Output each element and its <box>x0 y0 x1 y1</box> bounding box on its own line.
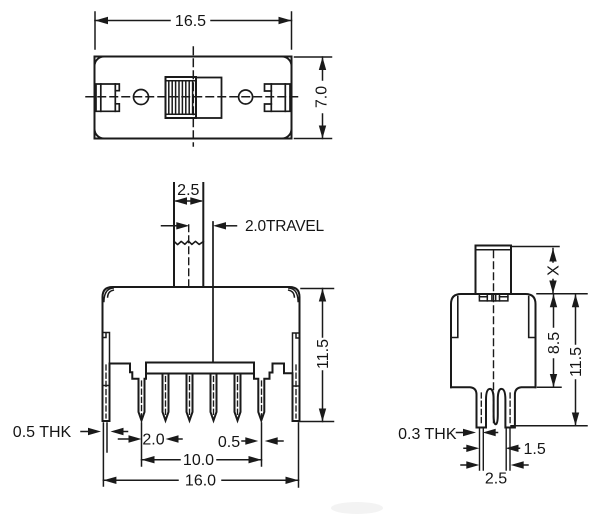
svg-text:11.5: 11.5 <box>568 347 585 377</box>
svg-text:2.5: 2.5 <box>485 471 507 488</box>
svg-text:1.5: 1.5 <box>524 441 546 458</box>
svg-text:X: X <box>546 265 563 276</box>
svg-text:0.3 THK: 0.3 THK <box>398 426 457 443</box>
svg-text:11.5: 11.5 <box>315 339 332 369</box>
svg-text:7.0: 7.0 <box>314 86 331 108</box>
svg-text:10.0: 10.0 <box>183 452 214 469</box>
svg-text:2.0: 2.0 <box>142 432 164 449</box>
svg-text:0.5: 0.5 <box>218 434 240 451</box>
svg-text:16.0: 16.0 <box>185 473 216 490</box>
svg-text:8.5: 8.5 <box>546 332 563 354</box>
svg-text:16.5: 16.5 <box>175 13 206 30</box>
svg-text:0.5 THK: 0.5 THK <box>13 424 72 441</box>
svg-text:2.5: 2.5 <box>177 182 199 199</box>
svg-text:2.0TRAVEL: 2.0TRAVEL <box>245 218 324 235</box>
